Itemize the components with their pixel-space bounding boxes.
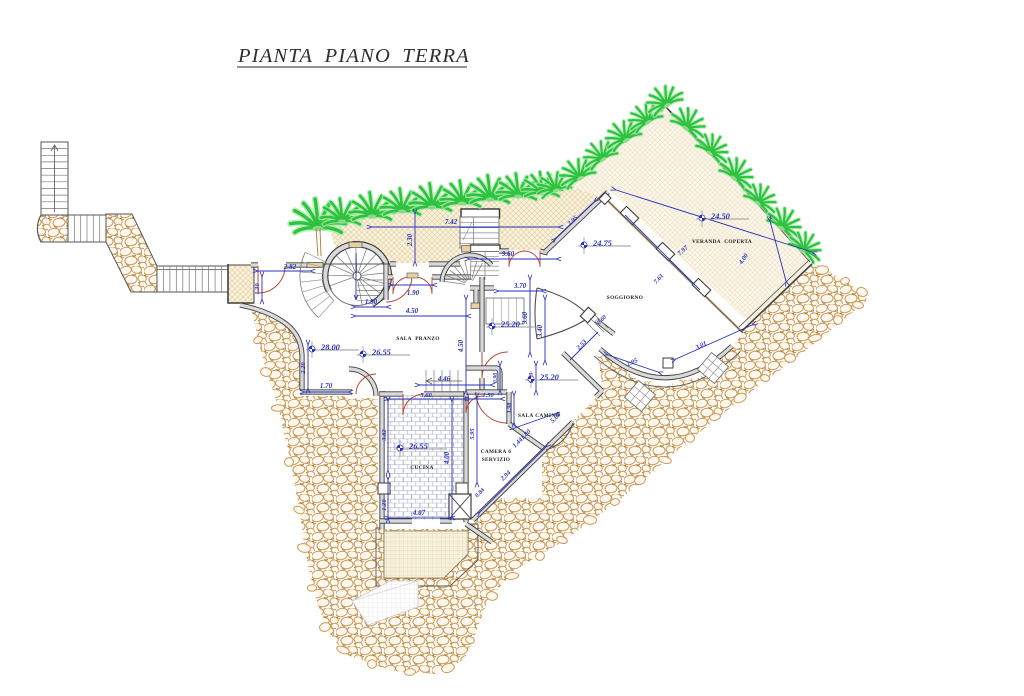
svg-text:1.90: 1.90 <box>365 298 378 306</box>
svg-text:1.50: 1.50 <box>482 392 494 399</box>
svg-text:CAMERA 6: CAMERA 6 <box>481 449 512 455</box>
svg-text:SALA PRANZO: SALA PRANZO <box>396 336 439 342</box>
svg-text:VERANDA COPERTA: VERANDA COPERTA <box>692 239 752 245</box>
svg-text:7.42: 7.42 <box>445 218 458 226</box>
svg-text:3.40: 3.40 <box>536 324 544 338</box>
svg-text:1.20: 1.20 <box>381 499 388 511</box>
svg-text:2.20: 2.20 <box>300 362 307 375</box>
svg-text:24.75: 24.75 <box>592 239 612 248</box>
svg-text:3.82: 3.82 <box>381 429 388 442</box>
svg-text:26.55: 26.55 <box>408 442 428 451</box>
svg-text:5.95: 5.95 <box>469 428 476 440</box>
svg-text:25.20: 25.20 <box>500 320 521 329</box>
svg-text:PIANTA PIANO TERRA: PIANTA PIANO TERRA <box>237 45 470 67</box>
svg-text:4.00: 4.00 <box>443 451 451 465</box>
svg-text:4.50: 4.50 <box>457 339 465 353</box>
svg-text:2.30: 2.30 <box>406 233 414 247</box>
svg-text:SERVIZIO: SERVIZIO <box>482 457 511 463</box>
svg-text:24.50: 24.50 <box>710 212 731 221</box>
svg-text:5.60: 5.60 <box>420 392 432 399</box>
svg-text:SALA CAMINO: SALA CAMINO <box>518 413 560 419</box>
svg-text:1.98: 1.98 <box>507 403 513 414</box>
svg-text:3.60: 3.60 <box>521 311 529 325</box>
svg-text:2.82: 2.82 <box>283 263 297 271</box>
svg-text:CUCINA: CUCINA <box>410 465 433 471</box>
svg-text:28.00: 28.00 <box>320 343 341 352</box>
svg-text:3.70: 3.70 <box>513 282 527 290</box>
svg-text:1.70: 1.70 <box>320 382 333 390</box>
svg-text:4.07: 4.07 <box>412 509 426 517</box>
svg-text:SOGGIORNO: SOGGIORNO <box>607 295 643 301</box>
svg-text:1.90: 1.90 <box>407 289 420 297</box>
svg-text:4.46: 4.46 <box>437 375 451 383</box>
svg-text:4.50: 4.50 <box>405 307 419 315</box>
svg-text:25.20: 25.20 <box>539 373 560 382</box>
svg-text:1.30: 1.30 <box>254 283 261 295</box>
svg-text:0.90: 0.90 <box>493 373 499 384</box>
svg-text:9.60: 9.60 <box>502 250 515 258</box>
svg-text:26.55: 26.55 <box>371 348 391 357</box>
